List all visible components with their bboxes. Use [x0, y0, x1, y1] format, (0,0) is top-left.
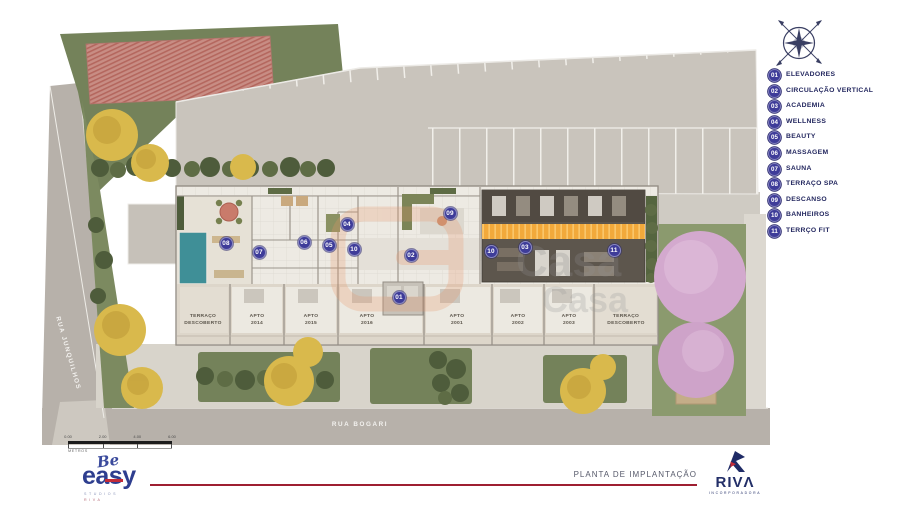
- legend-label-11: TERRÇO FIT: [786, 228, 830, 235]
- footer-divider-line: [150, 484, 697, 486]
- legend-item-03: 03ACADEMIA: [768, 100, 873, 113]
- marker-11: 11: [608, 244, 621, 257]
- marker-03: 03: [519, 241, 532, 254]
- legend-label-09: DESCANSO: [786, 197, 827, 204]
- scale-tick-1: 2.00: [99, 435, 107, 439]
- marker-08: 08: [220, 237, 233, 250]
- unit-label-2001: APTO2001: [425, 314, 489, 327]
- legend-num-09: 09: [768, 194, 781, 207]
- riva-logo: RIVΛ INCORPORADORA: [704, 448, 766, 495]
- riva-wordmark: RIVΛ: [704, 475, 766, 490]
- beeasy-logo: Be easy STUDIOS RIVA: [82, 456, 177, 506]
- legend-item-07: 07SAUNA: [768, 163, 873, 176]
- legend-label-01: ELEVADORES: [786, 72, 835, 79]
- legend-num-06: 06: [768, 147, 781, 160]
- marker-06: 06: [298, 236, 311, 249]
- legend-label-02: CIRCULAÇÃO VERTICAL: [786, 88, 873, 95]
- legend-item-08: 08TERRAÇO SPA: [768, 178, 873, 191]
- legend-label-08: TERRAÇO SPA: [786, 181, 838, 188]
- legend-num-05: 05: [768, 131, 781, 144]
- riva-mark-icon: [722, 448, 748, 474]
- unit-label-descoberto: TERRAÇODESCOBERTO: [594, 314, 658, 327]
- marker-04: 04: [341, 218, 354, 231]
- legend-item-01: 01ELEVADORES: [768, 69, 873, 82]
- legend-label-03: ACADEMIA: [786, 103, 825, 110]
- legend-item-04: 04WELLNESS: [768, 116, 873, 129]
- legend-label-05: BEAUTY: [786, 134, 816, 141]
- legend-item-10: 10BANHEIROS: [768, 209, 873, 222]
- riva-sub: INCORPORADORA: [704, 492, 766, 495]
- legend-list: 01ELEVADORES02CIRCULAÇÃO VERTICAL03ACADE…: [768, 69, 873, 238]
- marker-09: 09: [444, 207, 457, 220]
- marker-05: 05: [323, 239, 336, 252]
- beeasy-logo-sub2: RIVA: [84, 499, 103, 503]
- scale-tick-0: 0.00: [64, 435, 72, 439]
- legend-label-10: BANHEIROS: [786, 212, 830, 219]
- beeasy-logo-dash-icon: [105, 479, 123, 482]
- beeasy-logo-sub1: STUDIOS: [84, 493, 118, 497]
- marker-01: 01: [393, 291, 406, 304]
- legend-item-02: 02CIRCULAÇÃO VERTICAL: [768, 85, 873, 98]
- legend-item-09: 09DESCANSO: [768, 194, 873, 207]
- scale-tick-3: 6.00: [168, 435, 176, 439]
- legend-label-06: MASSAGEM: [786, 150, 828, 157]
- legend-item-06: 06MASSAGEM: [768, 147, 873, 160]
- legend-label-07: SAUNA: [786, 166, 812, 173]
- scale-bar: 0.00 2.00 4.00 6.00 METROS: [68, 435, 172, 454]
- neighbor-block: [128, 204, 178, 264]
- beeasy-logo-word: easy: [82, 464, 136, 489]
- scale-bar-ticks: [68, 444, 172, 449]
- legend-num-08: 08: [768, 178, 781, 191]
- legend-item-05: 05BEAUTY: [768, 131, 873, 144]
- legend-num-01: 01: [768, 69, 781, 82]
- page: Casa Casa 010203040506070809101011 TERRA…: [0, 0, 900, 506]
- scale-tick-2: 4.00: [133, 435, 141, 439]
- scale-tick-labels: 0.00 2.00 4.00 6.00: [68, 435, 172, 440]
- unit-label-2003: APTO2003: [537, 314, 601, 327]
- legend-num-02: 02: [768, 85, 781, 98]
- legend-num-11: 11: [768, 225, 781, 238]
- street-label-rua-bogari: RUA BOGARI: [300, 422, 420, 428]
- legend-label-04: WELLNESS: [786, 119, 826, 126]
- compass-rose-icon: [770, 12, 828, 72]
- legend-num-10: 10: [768, 209, 781, 222]
- marker-07: 07: [253, 246, 266, 259]
- unit-label-2015: APTO2015: [279, 314, 343, 327]
- scale-unit: METROS: [68, 450, 172, 454]
- marker-02: 02: [405, 249, 418, 262]
- legend-num-03: 03: [768, 100, 781, 113]
- legend-num-07: 07: [768, 163, 781, 176]
- legend-num-04: 04: [768, 116, 781, 129]
- site-plan-graphic: Casa Casa: [0, 0, 900, 506]
- legend-item-11: 11TERRÇO FIT: [768, 225, 873, 238]
- marker-10: 10: [348, 243, 361, 256]
- unit-label-2016: APTO2016: [335, 314, 399, 327]
- marker-10: 10: [485, 245, 498, 258]
- plan-title: PLANTA DE IMPLANTAÇÃO: [497, 471, 697, 479]
